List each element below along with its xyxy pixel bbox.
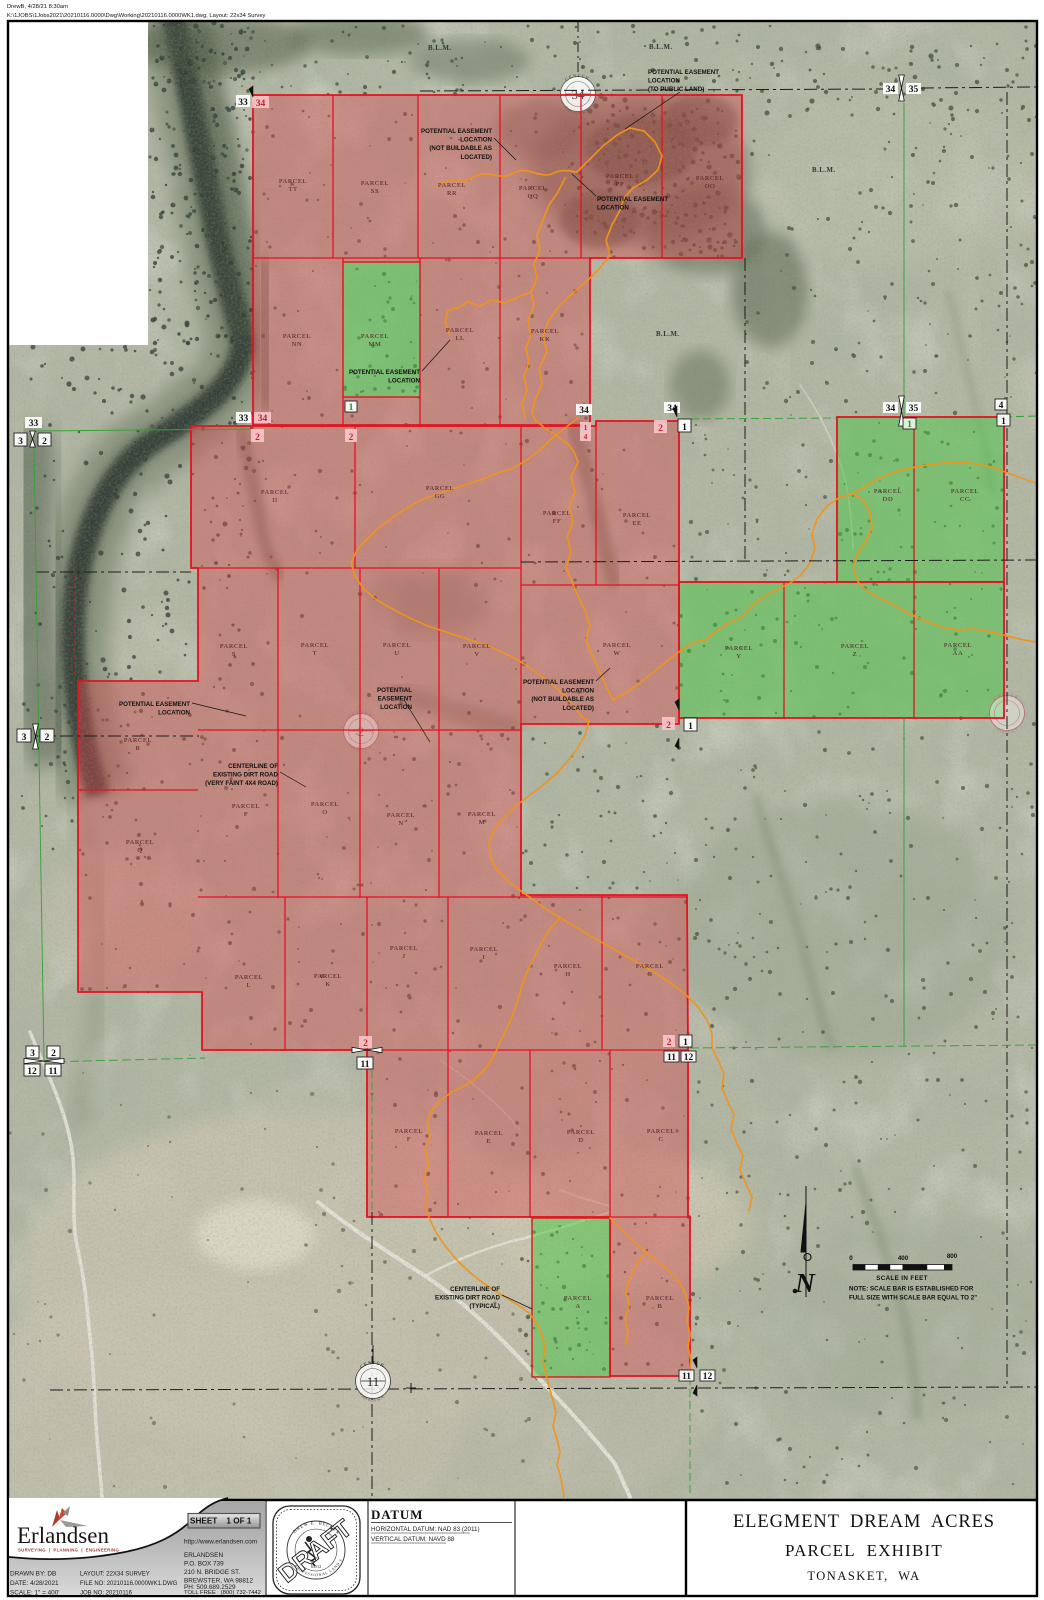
svg-text:C: C	[659, 1136, 664, 1143]
svg-text:W: W	[614, 650, 621, 657]
svg-text:2: 2	[42, 437, 47, 447]
svg-text:PARCEL: PARCEL	[531, 328, 559, 335]
svg-text:PARCEL: PARCEL	[725, 645, 753, 652]
svg-text:2: 2	[45, 733, 50, 743]
svg-text:PARCEL: PARCEL	[383, 642, 411, 649]
svg-text:PARCEL: PARCEL	[124, 737, 152, 744]
svg-text:800: 800	[947, 1253, 958, 1260]
svg-text:PARCEL: PARCEL	[468, 811, 496, 818]
svg-text:FF: FF	[553, 518, 562, 525]
svg-text:RR: RR	[447, 190, 457, 197]
svg-text:3: 3	[18, 437, 23, 447]
svg-text:11: 11	[367, 1374, 380, 1389]
svg-text:2: 2	[658, 424, 663, 434]
svg-text:EE: EE	[632, 520, 641, 527]
svg-text:PARCEL: PARCEL	[446, 327, 474, 334]
svg-text:2: 2	[666, 721, 671, 731]
svg-text:L: L	[247, 982, 252, 989]
svg-text:PARCEL: PARCEL	[283, 333, 311, 340]
svg-text:2: 2	[349, 433, 354, 443]
svg-text:PARCEL: PARCEL	[567, 1129, 595, 1136]
svg-text:Q: Q	[137, 847, 142, 854]
svg-text:PARCEL: PARCEL	[311, 801, 339, 808]
svg-text:PARCEL: PARCEL	[647, 1128, 675, 1135]
svg-text:34: 34	[258, 414, 268, 424]
svg-text:11: 11	[361, 1060, 370, 1070]
svg-text:http://www.erlandsen.com: http://www.erlandsen.com	[184, 1539, 257, 1546]
svg-text:1: 1	[682, 423, 687, 433]
svg-text:DrewB, 4/28/21 8:30am: DrewB, 4/28/21 8:30am	[7, 4, 68, 10]
svg-text:34: 34	[886, 85, 896, 95]
svg-text:J: J	[402, 953, 405, 960]
svg-text:SHEET 1 OF 1: SHEET 1 OF 1	[190, 1517, 252, 1526]
svg-text:DATUM: DATUM	[371, 1507, 423, 1522]
svg-text:12: 12	[27, 1067, 37, 1077]
svg-text:S: S	[232, 651, 236, 658]
svg-text:PARCEL: PARCEL	[279, 178, 307, 185]
svg-text:DD: DD	[883, 496, 894, 503]
svg-text:PARCEL: PARCEL	[463, 643, 491, 650]
svg-text:PARCEL: PARCEL	[951, 488, 979, 495]
svg-text:33: 33	[29, 419, 39, 429]
svg-text:D: D	[578, 1137, 583, 1144]
svg-text:1: 1	[584, 423, 588, 432]
svg-text:PARCEL: PARCEL	[235, 974, 263, 981]
svg-text:1: 1	[683, 1038, 688, 1048]
svg-text:2: 2	[363, 1039, 368, 1049]
svg-text:34: 34	[579, 406, 589, 416]
svg-text:DRAWN BY: DB: DRAWN BY: DB	[10, 1571, 56, 1578]
svg-text:PARCEL EXHIBIT: PARCEL EXHIBIT	[785, 1541, 943, 1560]
svg-text:PARCEL: PARCEL	[395, 1128, 423, 1135]
svg-text:400: 400	[898, 1255, 909, 1262]
svg-text:OO: OO	[705, 183, 716, 190]
svg-text:SCALE: 1" = 400': SCALE: 1" = 400'	[10, 1590, 60, 1597]
svg-text:2: 2	[51, 1049, 56, 1059]
svg-text:PARCEL: PARCEL	[438, 182, 466, 189]
svg-text:GG: GG	[435, 493, 446, 500]
svg-text:PARCEL: PARCEL	[301, 642, 329, 649]
svg-text:PARCEL: PARCEL	[564, 1295, 592, 1302]
svg-text:HORIZONTAL DATUM: NAD 83 (2011: HORIZONTAL DATUM: NAD 83 (2011)	[371, 1526, 480, 1533]
svg-text:G: G	[647, 971, 652, 978]
svg-text:K:\1JOBS\1Jobs2021\20210116.00: K:\1JOBS\1Jobs2021\20210116.0000\Dwg\Wor…	[7, 13, 266, 19]
svg-text:33: 33	[239, 414, 249, 424]
svg-text:VERTICAL DATUM: NAVD 88: VERTICAL DATUM: NAVD 88	[371, 1536, 455, 1543]
svg-text:2: 2	[667, 1038, 672, 1048]
svg-text:34: 34	[886, 404, 896, 414]
svg-text:POTENTIALEASEMENTLOCATION: POTENTIALEASEMENTLOCATION	[377, 687, 413, 711]
svg-text:2: 2	[255, 433, 260, 443]
svg-text:PARCEL: PARCEL	[361, 180, 389, 187]
svg-text:B.L.M.: B.L.M.	[656, 331, 680, 338]
svg-text:Erlandsen: Erlandsen	[17, 1523, 109, 1548]
svg-text:12: 12	[703, 1372, 713, 1382]
svg-text:PARCEL: PARCEL	[390, 945, 418, 952]
svg-text:Y: Y	[736, 653, 741, 660]
svg-text:12: 12	[684, 1053, 694, 1063]
svg-text:11: 11	[49, 1067, 58, 1077]
svg-text:PARCEL: PARCEL	[646, 1295, 674, 1302]
svg-text:T: T	[313, 650, 318, 657]
svg-text:3: 3	[30, 1049, 35, 1059]
svg-text:PARCEL: PARCEL	[314, 973, 342, 980]
svg-text:35: 35	[909, 85, 919, 95]
svg-text:PARCEL: PARCEL	[944, 642, 972, 649]
svg-text:4: 4	[999, 401, 1004, 411]
svg-text:TT: TT	[288, 186, 297, 193]
svg-text:V: V	[474, 651, 479, 658]
svg-text:PARCEL: PARCEL	[126, 839, 154, 846]
svg-text:B: B	[658, 1303, 663, 1310]
svg-text:E: E	[487, 1138, 492, 1145]
svg-text:N: N	[794, 1268, 816, 1298]
svg-text:SCALE IN FEET: SCALE IN FEET	[876, 1275, 928, 1282]
svg-text:PP: PP	[616, 181, 625, 188]
svg-text:1: 1	[907, 420, 912, 430]
svg-text:SS: SS	[371, 188, 380, 195]
svg-text:3: 3	[22, 733, 27, 743]
svg-text:1: 1	[688, 722, 693, 732]
svg-text:PARCEL: PARCEL	[261, 489, 289, 496]
svg-text:TONASKET, WA: TONASKET, WA	[807, 1569, 920, 1583]
svg-text:2: 2	[358, 724, 365, 739]
svg-text:M: M	[479, 819, 485, 826]
svg-text:PARCEL: PARCEL	[543, 510, 571, 517]
svg-text:A: A	[575, 1303, 580, 1310]
svg-text:PARCEL: PARCEL	[220, 643, 248, 650]
svg-text:F: F	[407, 1136, 411, 1143]
svg-text:II: II	[272, 497, 278, 504]
svg-text:PARCEL: PARCEL	[426, 485, 454, 492]
svg-text:1: 1	[1001, 417, 1006, 427]
svg-text:B.L.M.: B.L.M.	[649, 44, 673, 51]
svg-text:FILE NO: 20210116.0000WK1.DWG: FILE NO: 20210116.0000WK1.DWG	[80, 1581, 178, 1587]
svg-text:TOLL FREE (800) 732-7442: TOLL FREE (800) 732-7442	[184, 1590, 261, 1596]
svg-text:LL: LL	[455, 335, 464, 342]
svg-text:PARCEL: PARCEL	[232, 803, 260, 810]
svg-text:PARCEL: PARCEL	[470, 946, 498, 953]
svg-text:CC: CC	[960, 496, 970, 503]
svg-text:LAYOUT: 22X34 SURVEY: LAYOUT: 22X34 SURVEY	[80, 1572, 150, 1578]
svg-text:ELEGMENT DREAM ACRES: ELEGMENT DREAM ACRES	[733, 1512, 995, 1532]
svg-text:QQ: QQ	[528, 193, 539, 200]
svg-text:KK: KK	[540, 336, 551, 343]
svg-text:PARCEL: PARCEL	[696, 175, 724, 182]
svg-text:210 N. BRIDGE ST.: 210 N. BRIDGE ST.	[184, 1569, 240, 1576]
svg-text:NN: NN	[292, 341, 303, 348]
svg-text:ERLANDSEN: ERLANDSEN	[184, 1552, 223, 1559]
svg-text:DATE: 4/28/2021: DATE: 4/28/2021	[10, 1580, 59, 1587]
svg-text:PARCEL: PARCEL	[874, 488, 902, 495]
svg-text:33: 33	[238, 98, 248, 108]
svg-text:R: R	[136, 745, 141, 752]
svg-text:1: 1	[349, 403, 354, 413]
svg-text:P.O. BOX 739: P.O. BOX 739	[184, 1561, 224, 1568]
svg-text:NOTE: SCALE BAR IS ESTABLISHE: NOTE: SCALE BAR IS ESTABLISHED FOR	[849, 1286, 974, 1293]
svg-text:K: K	[325, 981, 330, 988]
svg-text:34: 34	[256, 99, 266, 109]
svg-text:PARCEL: PARCEL	[387, 812, 415, 819]
svg-text:O: O	[322, 809, 327, 816]
svg-text:PARCEL: PARCEL	[606, 173, 634, 180]
svg-text:AA: AA	[953, 650, 964, 657]
svg-text:Z: Z	[853, 651, 858, 658]
svg-text:PARCEL: PARCEL	[554, 963, 582, 970]
svg-text:FULL SIZE WITH SCALE BAR EQUAL: FULL SIZE WITH SCALE BAR EQUAL TO 2"	[849, 1295, 977, 1302]
svg-text:PARCEL: PARCEL	[636, 963, 664, 970]
svg-text:11: 11	[667, 1053, 676, 1063]
svg-text:B.L.M.: B.L.M.	[812, 167, 836, 174]
svg-text:MM: MM	[369, 341, 382, 348]
svg-text:PARCEL: PARCEL	[841, 643, 869, 650]
svg-text:SURVEYING | PLANNING | ENG: SURVEYING | PLANNING | ENGINEERING	[18, 1548, 119, 1553]
svg-text:JOB NO: 20210116: JOB NO: 20210116	[80, 1591, 133, 1597]
svg-text:U: U	[394, 650, 399, 657]
svg-text:PARCEL: PARCEL	[475, 1130, 503, 1137]
svg-text:35: 35	[909, 404, 919, 414]
svg-text:B.L.M.: B.L.M.	[428, 45, 452, 52]
svg-text:P: P	[244, 811, 248, 818]
svg-text:4: 4	[584, 432, 588, 441]
svg-text:H: H	[565, 971, 570, 978]
svg-text:PARCEL: PARCEL	[361, 333, 389, 340]
svg-text:11: 11	[682, 1372, 691, 1382]
svg-text:I: I	[483, 954, 486, 961]
svg-text:N: N	[398, 820, 403, 827]
svg-text:0: 0	[849, 1255, 853, 1262]
svg-text:PARCEL: PARCEL	[603, 642, 631, 649]
svg-text:PARCEL: PARCEL	[623, 512, 651, 519]
svg-text:PARCEL: PARCEL	[519, 185, 547, 192]
